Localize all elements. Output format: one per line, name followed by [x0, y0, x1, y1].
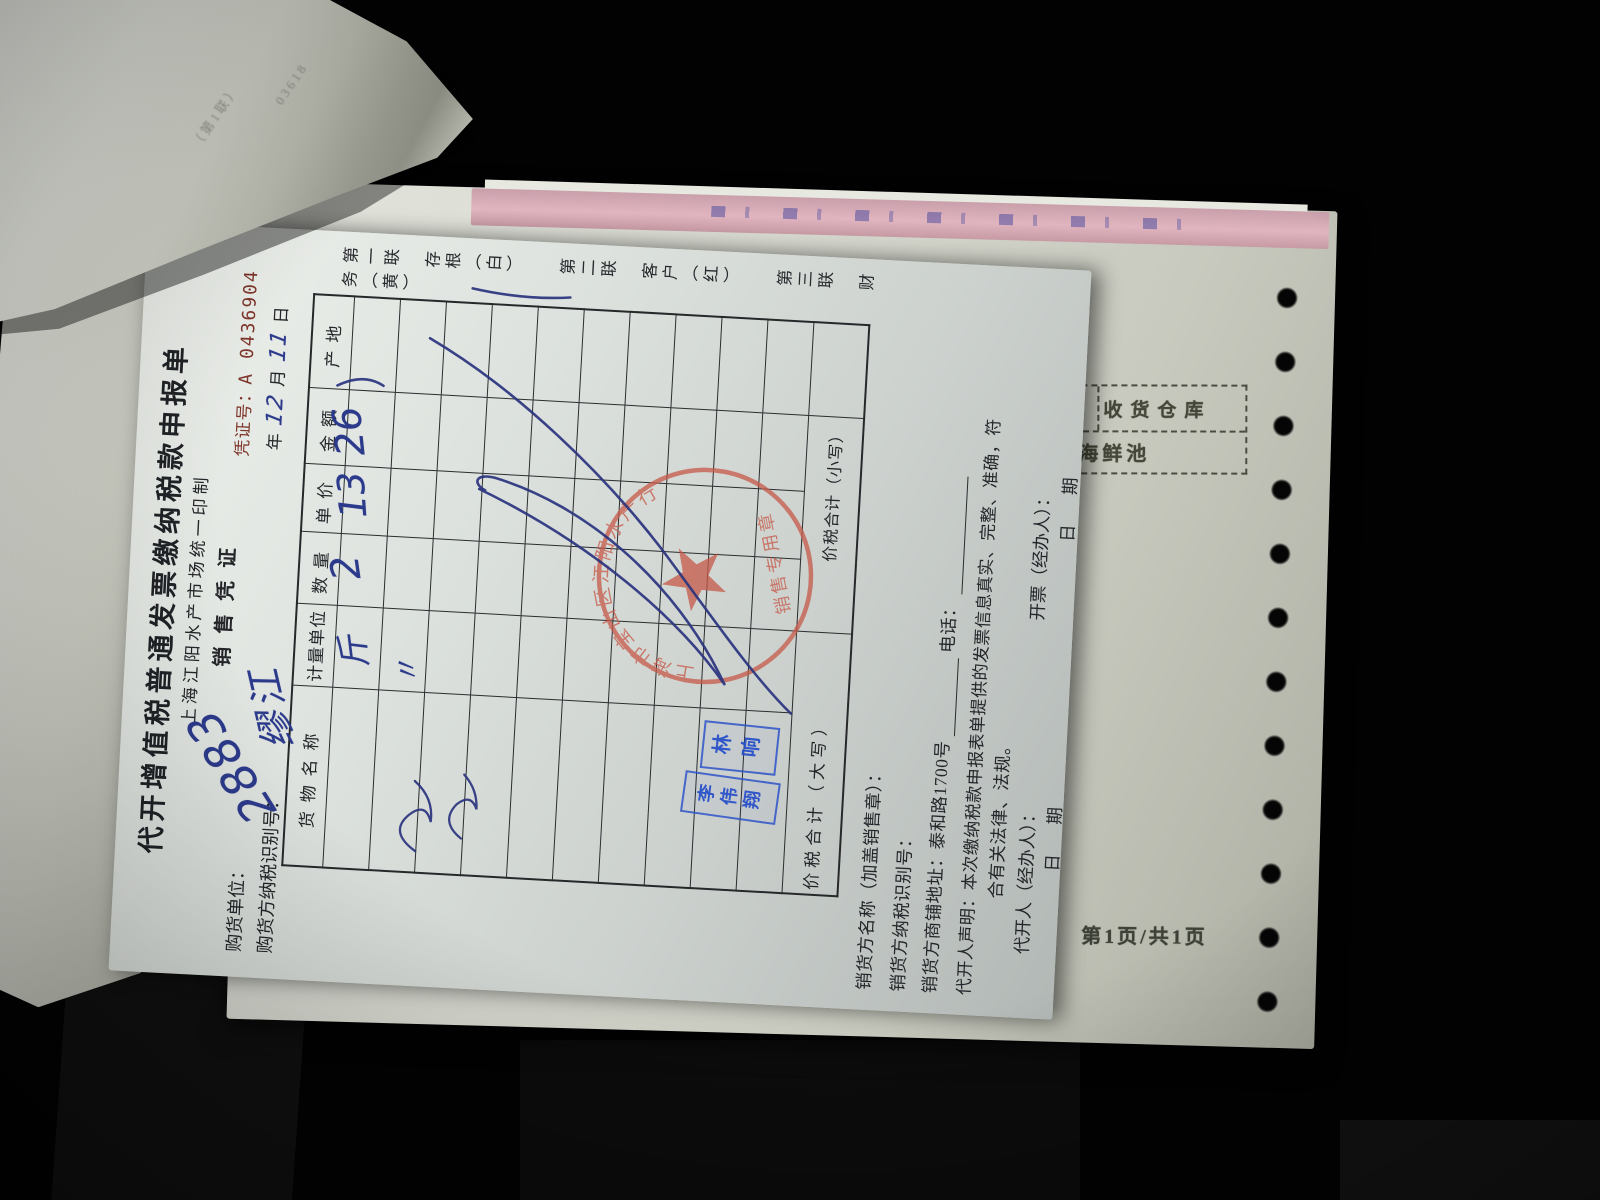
month-value-handwritten: 12: [262, 391, 288, 428]
buyer-label: 购货单位：: [220, 861, 251, 952]
voucher-no-value: A 0436904: [235, 269, 262, 385]
total-lower-label: 价税合计（小写）: [796, 416, 864, 635]
page-number: 第1页/共1页: [1081, 920, 1208, 950]
photo-scene: 收货仓库 海鲜池 第1页/共1页 代开增值税普通发票缴纳税款申报单 上海江阳水产…: [0, 0, 1600, 1200]
row1-unit-handwritten: 斤: [326, 633, 378, 672]
seller-address-label: 销货方商铺地址：: [919, 849, 947, 994]
blank-line: [947, 476, 968, 595]
year-label: 年: [265, 431, 285, 451]
date-line: 年 12 月 11 日: [260, 304, 294, 451]
row1-amount-handwritten: 26: [325, 404, 375, 458]
issuer-label: 开票（经办人）：: [1024, 489, 1056, 621]
goods-table: 货物名称 计量单位 数量 单价 金额 产地 价税合计（大写）: [281, 293, 870, 897]
faint-print-fragment: （第1联）: [186, 80, 243, 152]
invoice-sheet: 代开增值税普通发票缴纳税款申报单 上海江阳水产市场统一印制 销售凭证 购货单位：…: [109, 221, 1092, 1019]
divider: [1097, 386, 1099, 430]
pen-marks: [711, 206, 1209, 231]
name-stamp-lin-xiang: 林响: [700, 720, 781, 776]
warehouse-name: 海鲜池: [1078, 437, 1150, 466]
seller-tax-id-label: 销货方纳税识别号：: [885, 829, 918, 992]
receive-box-value: 海鲜池: [1073, 432, 1245, 470]
faint-print-fragment: 03618: [272, 60, 312, 108]
desk-shadow-object: [1340, 1120, 1600, 1200]
desk-shadow-object: [520, 1040, 1080, 1200]
agent-label: 代开人（经办人）：: [1009, 805, 1042, 955]
row1-price-handwritten: 13: [329, 470, 375, 520]
day-value-handwritten: 11: [266, 327, 292, 364]
blank-line: [940, 658, 959, 737]
receive-warehouse-label: 收货仓库: [1103, 395, 1211, 422]
seller-name-label: 销货方名称（加盖销售章）：: [851, 764, 888, 990]
col-origin: 产地: [309, 294, 354, 390]
voucher-no-label: 凭证号：: [233, 384, 256, 457]
receive-box-header: 收货仓库: [1073, 386, 1245, 432]
month-label: 月: [268, 367, 288, 387]
phone-label: 电话：: [937, 599, 960, 654]
receive-warehouse-box: 收货仓库 海鲜池: [1071, 384, 1247, 474]
sprocket-holes: [1245, 267, 1310, 1024]
seller-address-value: 泰和路1700号: [927, 740, 953, 850]
day-label: 日: [272, 304, 292, 324]
